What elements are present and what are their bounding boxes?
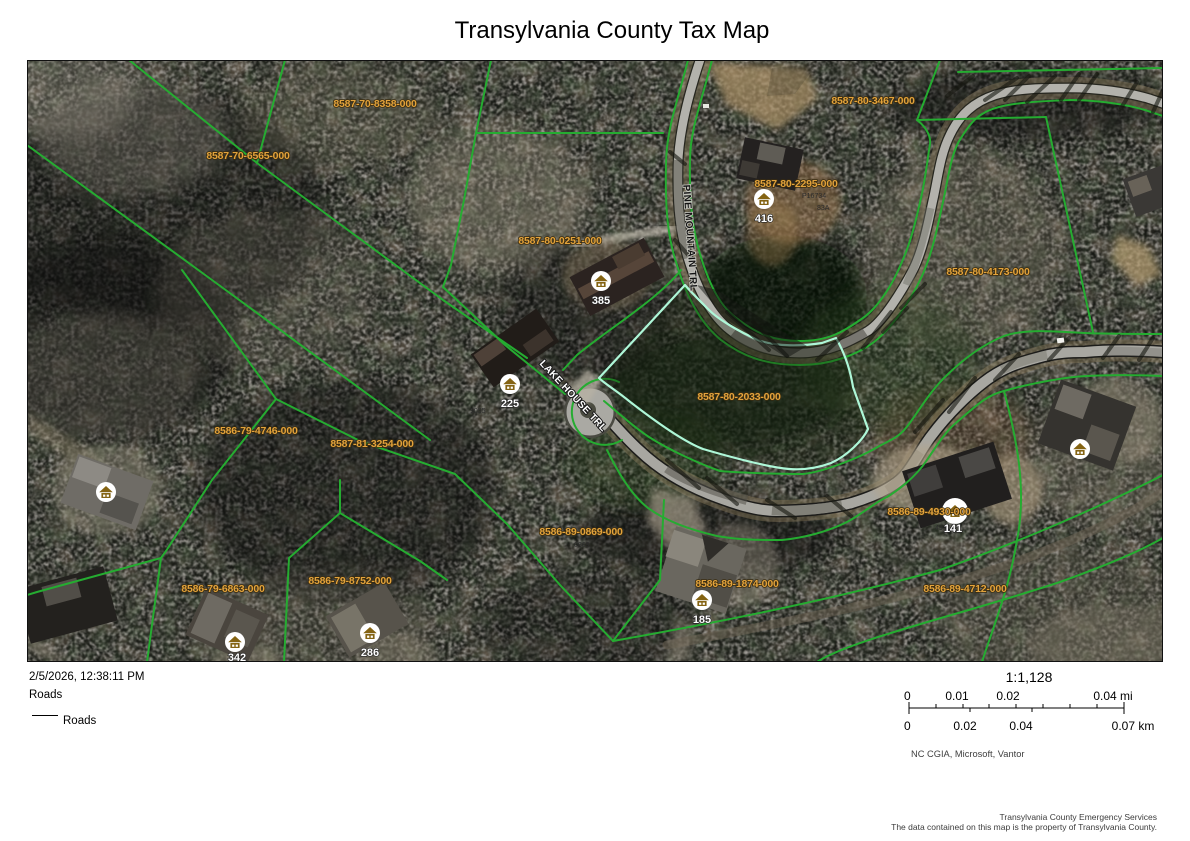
svg-text:342: 342	[228, 652, 246, 662]
svg-text:8587-80-2033-000: 8587-80-2033-000	[697, 391, 781, 403]
svg-text:0.04 mi: 0.04 mi	[1093, 689, 1132, 703]
svg-text:0: 0	[904, 719, 911, 733]
svg-text:385: 385	[592, 295, 610, 307]
svg-text:141: 141	[944, 523, 962, 535]
svg-text:83A: 83A	[817, 205, 830, 212]
svg-text:8586-89-1874-000: 8586-89-1874-000	[695, 578, 779, 590]
svg-text:185: 185	[693, 614, 711, 626]
svg-text:0.07 km: 0.07 km	[1112, 719, 1155, 733]
svg-text:8587-80-3467-000: 8587-80-3467-000	[831, 95, 915, 107]
svg-text:8587-70-6565-000: 8587-70-6565-000	[206, 150, 290, 162]
svg-text:225: 225	[501, 398, 519, 410]
svg-text:8587-81-3254-000: 8587-81-3254-000	[330, 438, 414, 450]
svg-text:0: 0	[904, 689, 911, 703]
svg-text:0.01: 0.01	[945, 689, 969, 703]
svg-text:0.04: 0.04	[1009, 719, 1033, 733]
svg-text:0.02: 0.02	[953, 719, 977, 733]
svg-text:0869: 0869	[574, 542, 590, 549]
svg-text:8586-79-6863-000: 8586-79-6863-000	[181, 583, 265, 595]
svg-text:0.02: 0.02	[996, 689, 1020, 703]
svg-text:8586-79-8752-000: 8586-79-8752-000	[308, 575, 392, 587]
svg-text:8586-79-4746-000: 8586-79-4746-000	[214, 425, 298, 437]
svg-text:8586-89-4930-000: 8586-89-4930-000	[887, 506, 971, 518]
svg-text:8586-89-0869-000: 8586-89-0869-000	[539, 526, 623, 538]
svg-text:8587-80-2295-000: 8587-80-2295-000	[754, 178, 838, 190]
svg-text:8587-70-8358-000: 8587-70-8358-000	[333, 98, 417, 110]
svg-text:8587-80-0251-000: 8587-80-0251-000	[518, 235, 602, 247]
svg-text:9055: 9055	[470, 408, 486, 415]
svg-text:286: 286	[361, 647, 379, 659]
svg-text:416: 416	[755, 213, 773, 225]
svg-text:8587-80-4173-000: 8587-80-4173-000	[946, 266, 1030, 278]
svg-text:P16734: P16734	[802, 193, 826, 200]
svg-text:8586-89-4712-000: 8586-89-4712-000	[923, 583, 1007, 595]
